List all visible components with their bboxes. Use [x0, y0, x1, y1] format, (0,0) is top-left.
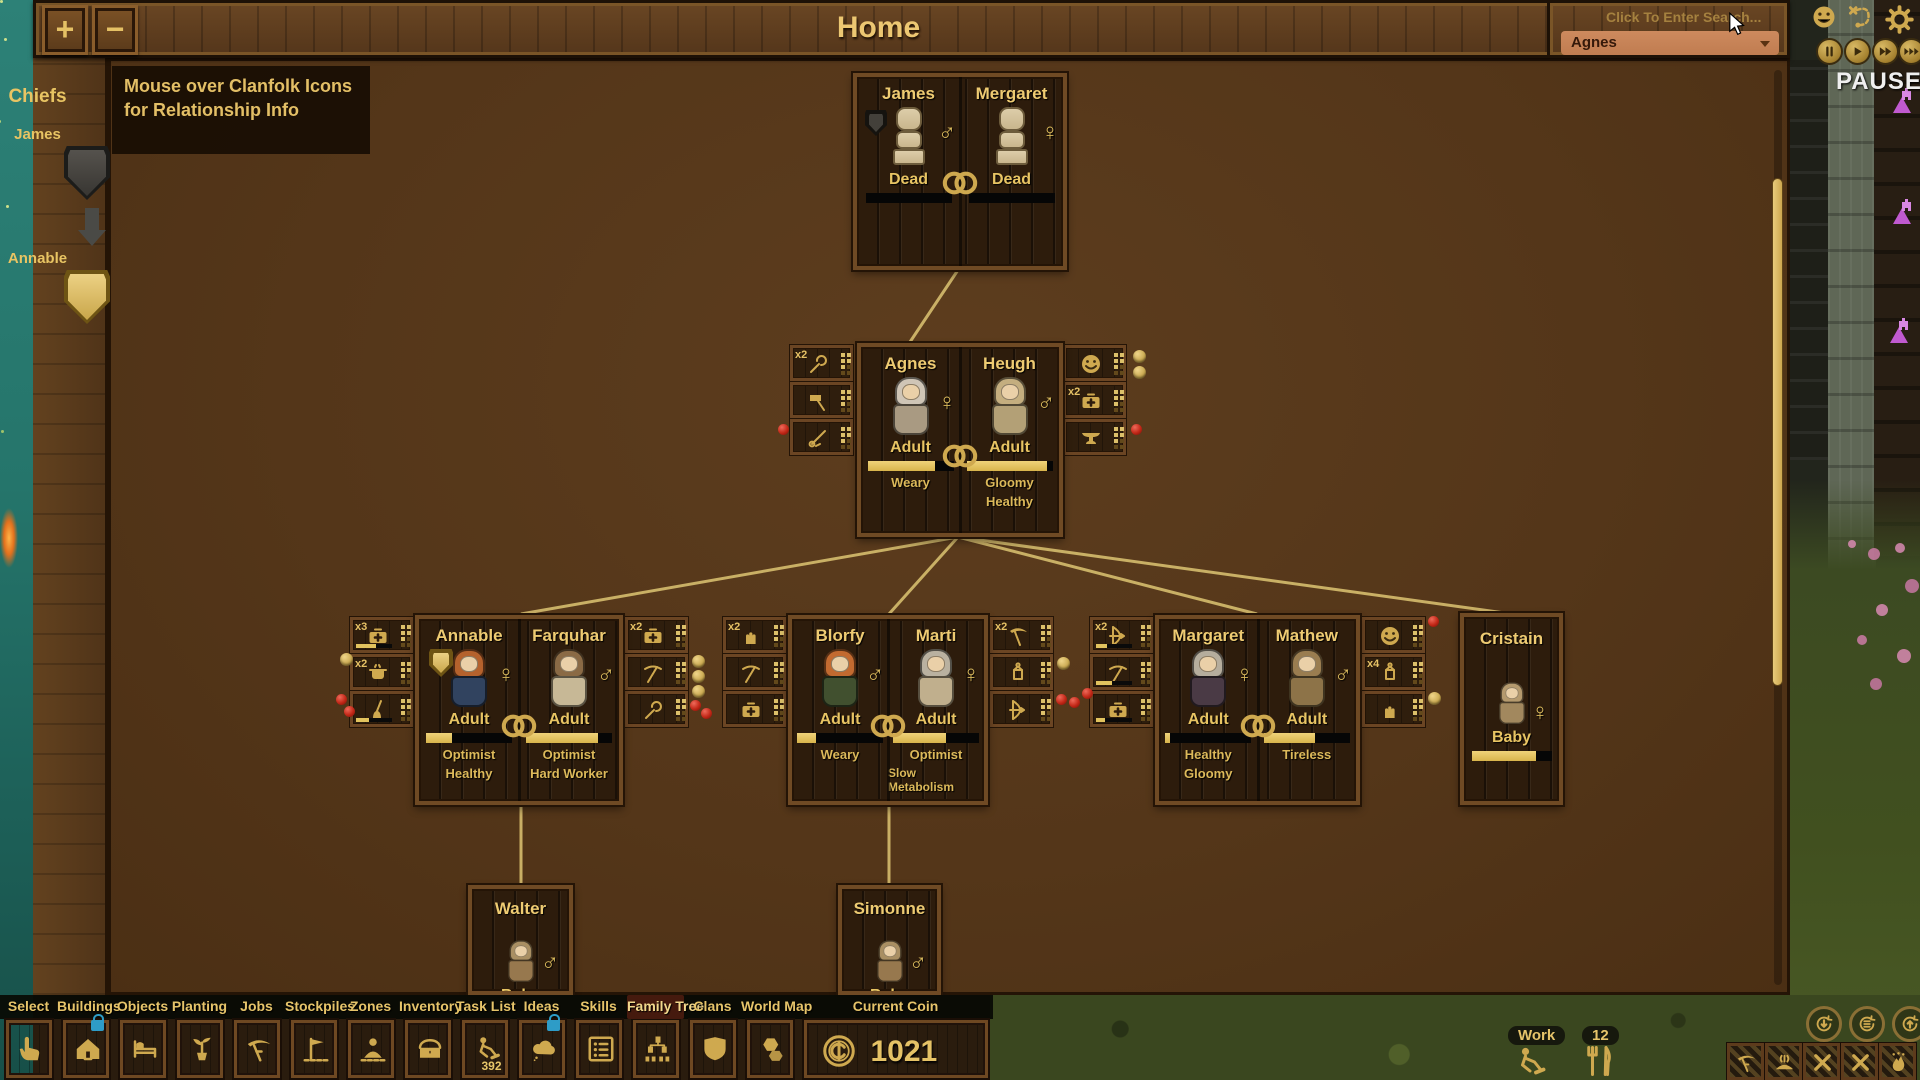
grave-avatar [892, 107, 926, 169]
age-stage: Baby [1492, 729, 1531, 747]
mound-plant-icon [1773, 1051, 1796, 1074]
wrench-icon [641, 698, 665, 722]
tab-jobs[interactable]: Jobs [228, 995, 285, 1080]
page-title: Home [0, 11, 1757, 45]
chevron-down-icon [1760, 41, 1770, 47]
tab-label: Current Coin [798, 995, 993, 1019]
hammer-icon [806, 389, 830, 413]
skill-box[interactable] [790, 419, 853, 455]
lock-icon [91, 1020, 104, 1031]
smiley-icon [1378, 624, 1402, 648]
task-count-badge: 392 [481, 1059, 501, 1073]
scythe-icon [244, 1034, 274, 1064]
gender-male-icon: ♂ [866, 661, 884, 689]
needle-icon [806, 426, 830, 450]
succession-arrow-icon [85, 208, 99, 230]
life-status: Dead [889, 171, 928, 189]
age-stage: Adult [890, 439, 931, 457]
tree-node-annable-farquhar[interactable]: Annable Adult Optimist Healthy ♀ Farquha… [415, 615, 623, 805]
mini-smiley-icon[interactable] [692, 670, 705, 683]
house-icon [73, 1034, 103, 1064]
member-name: Heugh [983, 354, 1036, 374]
member-name: Mergaret [976, 84, 1048, 104]
relation-skill-icons: x2 [990, 617, 1053, 727]
gender-female-icon: ♀ [962, 661, 980, 689]
skill-box[interactable]: x2 [1063, 382, 1126, 418]
mini-smiley-icon[interactable] [1428, 692, 1441, 705]
age-stage: Adult [449, 711, 490, 729]
skill-box[interactable] [1063, 419, 1126, 455]
member-name: Walter [495, 899, 546, 919]
chiefs-title: Chiefs [0, 86, 75, 108]
member-blorfy[interactable]: Blorfy Adult Weary ♂ [792, 619, 888, 801]
member-name: Agnes [885, 354, 937, 374]
plant-icon [187, 1034, 217, 1064]
medkit-icon [739, 698, 763, 722]
tree-node-james-mergaret[interactable]: James Dead ♂ Mergaret Dead ♀ [853, 73, 1067, 270]
relationship-dot[interactable] [1428, 616, 1439, 627]
gender-female-icon: ♀ [497, 661, 515, 689]
member-mathew[interactable]: Mathew Adult Tireless ♂ [1258, 619, 1357, 801]
chief-name: Annable [0, 250, 75, 267]
tab-label: Objects [114, 995, 171, 1019]
lantern-icon [1006, 661, 1030, 685]
world-fire-glow [0, 508, 18, 568]
member-farquhar[interactable]: Farquhar Adult Optimist Hard Worker ♂ [519, 619, 619, 801]
skill-box[interactable] [350, 691, 413, 727]
trait: Hard Worker [530, 766, 608, 781]
skill-box[interactable] [1063, 345, 1126, 381]
trait: Gloomy [985, 475, 1033, 490]
lantern-icon [1378, 661, 1402, 685]
member-name: James [882, 84, 935, 104]
member-name: Simonne [854, 899, 926, 919]
tab-label: World Map [741, 995, 798, 1019]
gender-male-icon: ♂ [1334, 661, 1352, 689]
hint-tooltip: Mouse over Clanfolk Icons for Relationsh… [112, 66, 370, 154]
trait: Optimist [543, 747, 596, 762]
baby-avatar [505, 940, 537, 983]
fire-icon [1887, 1051, 1910, 1074]
history-list-button[interactable] [1849, 1006, 1885, 1042]
fast-forward-button[interactable] [1872, 38, 1899, 65]
member-annable[interactable]: Annable Adult Optimist Healthy ♀ [419, 619, 519, 801]
food-cutlery-icon[interactable] [1582, 1042, 1618, 1080]
relationship-dot[interactable] [778, 424, 789, 435]
relationship-dot[interactable] [1082, 688, 1093, 699]
relation-skill-icons: x2 [790, 345, 853, 455]
member-name: Margaret [1172, 626, 1244, 646]
former-chief-shield-icon [865, 110, 887, 136]
burn-zone-button[interactable] [1879, 1043, 1916, 1080]
relation-skill-icons: x2 [1063, 345, 1126, 455]
age-stage: Adult [989, 439, 1030, 457]
tab-label: Zones [342, 995, 399, 1019]
bow-icon [1006, 698, 1030, 722]
relationship-dot[interactable] [690, 700, 701, 711]
skill-box[interactable]: x2 [1090, 617, 1153, 653]
select-hand-icon [16, 1034, 46, 1064]
skill-box[interactable] [990, 654, 1053, 690]
scrollbar-thumb[interactable] [1772, 178, 1783, 686]
baby-avatar [1496, 682, 1528, 725]
marriage-rings-icon [938, 169, 982, 197]
thought-cloud-icon [529, 1034, 559, 1064]
tree-node-blorfy-marti[interactable]: Blorfy Adult Weary ♂ Marti Adult Optimis… [788, 615, 988, 805]
tab-planting[interactable]: Planting [171, 995, 228, 1080]
cancel-zone-button-2[interactable] [1841, 1043, 1878, 1080]
medkit-icon [641, 624, 665, 648]
cooking-pot-icon [366, 661, 390, 685]
settings-gear-icon[interactable] [1884, 4, 1915, 35]
tab-stockpiles[interactable]: Stockpiles [285, 995, 342, 1080]
marriage-rings-icon [938, 442, 982, 470]
member-name: Cristain [1480, 629, 1543, 649]
medkit-icon [1079, 389, 1103, 413]
skill-box[interactable] [723, 654, 786, 690]
grave-avatar [995, 107, 1029, 169]
chief-shield-james[interactable] [64, 146, 110, 200]
glove-icon [739, 624, 763, 648]
pause-button[interactable] [1816, 38, 1843, 65]
chief-shield-annable[interactable] [64, 270, 110, 324]
avatar [889, 377, 933, 437]
blossom-trees [1848, 540, 1856, 548]
relationship-dot[interactable] [336, 694, 347, 705]
route-planner-icon[interactable] [1846, 2, 1876, 32]
plant-zone-button[interactable] [1765, 1043, 1802, 1080]
tab-world-map[interactable]: World Map [741, 995, 798, 1080]
mini-smiley-icon[interactable] [1133, 350, 1146, 363]
avatar [1285, 649, 1329, 709]
mood-overview-icon[interactable] [1810, 3, 1838, 31]
trait: Slow Metabolism [888, 766, 984, 794]
tab-label: Select [0, 995, 57, 1019]
relationship-dot[interactable] [1069, 697, 1080, 708]
relationship-dot[interactable] [701, 708, 712, 719]
skill-box[interactable] [625, 654, 688, 690]
cancel-zone-button[interactable] [1803, 1043, 1840, 1080]
skill-box[interactable]: x3 [350, 617, 413, 653]
avatar [547, 649, 591, 709]
gender-female-icon: ♀ [1236, 661, 1254, 689]
gender-male-icon: ♂ [1037, 389, 1055, 417]
member-name: Farquhar [532, 626, 606, 646]
relation-skill-icons: x2 [625, 617, 688, 727]
map-marker-icon [1893, 97, 1911, 113]
tab-buildings[interactable]: Buildings [57, 995, 114, 1080]
tree-node-margaret-mathew[interactable]: Margaret Adult Healthy Gloomy ♀ Mathew A… [1155, 615, 1360, 805]
member-agnes[interactable]: Agnes Adult Weary ♀ [861, 347, 960, 533]
skills-list-icon [586, 1034, 616, 1064]
lock-icon [547, 1020, 560, 1031]
avatar [447, 649, 491, 709]
baby-avatar [874, 940, 906, 983]
tab-label: Planting [171, 995, 228, 1019]
pickaxe-icon [739, 661, 763, 685]
work-indicator-label: Work [1508, 1026, 1565, 1045]
mini-smiley-icon[interactable] [1057, 657, 1070, 670]
member-simonne[interactable]: Simonne Baby ♂ [842, 889, 937, 995]
bottom-toolbar: Select Buildings Objects Planting Jobs S… [0, 995, 993, 1080]
trait: Optimist [910, 747, 963, 762]
mouse-cursor [1727, 12, 1747, 36]
skill-box[interactable]: x2 [790, 345, 853, 381]
fastest-forward-button[interactable] [1898, 38, 1920, 65]
gender-female-icon: ♀ [938, 389, 956, 417]
history-up-button[interactable] [1892, 1006, 1920, 1042]
chest-icon [415, 1034, 445, 1064]
trait: Healthy [446, 766, 493, 781]
chief-badge-icon [429, 649, 453, 677]
tab-label: Task List [456, 995, 513, 1019]
relationship-dot[interactable] [1131, 424, 1142, 435]
age-stage: Adult [549, 711, 590, 729]
mini-smiley-icon[interactable] [692, 685, 705, 698]
member-name: Mathew [1276, 626, 1338, 646]
tab-family-tree[interactable]: Family Tree [627, 995, 684, 1080]
stockpile-flag-icon [301, 1034, 331, 1064]
world-grass [1790, 480, 1920, 1080]
marriage-rings-icon [1236, 712, 1280, 740]
tab-select[interactable]: Select [0, 995, 57, 1080]
member-walter[interactable]: Walter Baby ♂ [472, 889, 569, 995]
member-name: Blorfy [815, 626, 864, 646]
skill-box[interactable]: x2 [990, 617, 1053, 653]
relation-skill-icons: x2 [1090, 617, 1153, 727]
tab-label: Skills [570, 995, 627, 1019]
tree-node-agnes-heugh[interactable]: Agnes Adult Weary ♀ Heugh Adult Gloomy H… [857, 343, 1063, 537]
relationship-dot[interactable] [344, 706, 355, 717]
relationship-dot[interactable] [1056, 694, 1067, 705]
tab-skills[interactable]: Skills [570, 995, 627, 1080]
lifespan-bar [1472, 751, 1552, 761]
tab-zones[interactable]: Zones [342, 995, 399, 1080]
member-marti[interactable]: Marti Adult Optimist Slow Metabolism ♀ [888, 619, 984, 801]
gender-male-icon: ♂ [938, 119, 956, 147]
person-select-value: Agnes [1571, 34, 1617, 51]
gender-female-icon: ♀ [1531, 699, 1549, 727]
tab-ideas[interactable]: Ideas [513, 995, 570, 1080]
trait: Weary [821, 747, 860, 762]
harvest-scythe-icon [1735, 1051, 1758, 1074]
tab-current-coin[interactable]: Current Coin1021 [798, 995, 993, 1080]
trait: Tireless [1282, 747, 1331, 762]
avatar [1186, 649, 1230, 709]
chief-name: James [0, 126, 75, 143]
paused-indicator: PAUSED [1836, 68, 1920, 96]
life-status: Dead [992, 171, 1031, 189]
age-stage: Adult [1286, 711, 1327, 729]
work-digger-icon[interactable] [1512, 1044, 1548, 1080]
skill-box[interactable] [790, 382, 853, 418]
tab-clans[interactable]: Clans [684, 995, 741, 1080]
gender-female-icon: ♀ [1041, 119, 1059, 147]
mini-smiley-icon[interactable] [1133, 366, 1146, 379]
world-map-hex-icon [757, 1034, 787, 1064]
map-marker-icon [1890, 327, 1908, 343]
skill-box[interactable]: x2 [625, 617, 688, 653]
marriage-rings-icon [866, 712, 910, 740]
history-down-button[interactable] [1806, 1006, 1842, 1042]
marriage-rings-icon [497, 712, 541, 740]
smiley-icon [1079, 352, 1103, 376]
trait: Optimist [443, 747, 496, 762]
tree-node-cristain[interactable]: Cristain Baby ♀ [1460, 613, 1563, 805]
zone-person-icon [358, 1034, 388, 1064]
mini-smiley-icon[interactable] [340, 653, 353, 666]
avatar [818, 649, 862, 709]
skill-box[interactable]: x4 [1362, 654, 1425, 690]
skill-box[interactable] [625, 691, 688, 727]
age-stage: Adult [1188, 711, 1229, 729]
tab-label: Buildings [57, 995, 114, 1019]
tab-label: Stockpiles [285, 995, 342, 1019]
relation-skill-icons: x2 [723, 617, 786, 727]
zoom-out-button[interactable]: − [92, 5, 138, 55]
member-margaret[interactable]: Margaret Adult Healthy Gloomy ♀ [1159, 619, 1258, 801]
map-marker-icon [1893, 208, 1911, 224]
member-name: Marti [916, 626, 957, 646]
bed-icon [130, 1034, 160, 1064]
trait: Healthy [1185, 747, 1232, 762]
tab-inventory[interactable]: Inventory [399, 995, 456, 1080]
zoom-in-button[interactable]: + [42, 5, 88, 55]
tree-node-simonne[interactable]: Simonne Baby ♂ [838, 885, 941, 995]
member-heugh[interactable]: Heugh Adult Gloomy Healthy ♂ [960, 347, 1059, 533]
world-wall [1790, 60, 1830, 460]
skill-box[interactable] [990, 691, 1053, 727]
anvil-icon [1079, 426, 1103, 450]
avatar [988, 377, 1032, 437]
skill-box[interactable] [1362, 617, 1425, 653]
clan-shield-icon [700, 1034, 730, 1064]
x-mark-icon [1811, 1051, 1834, 1074]
tree-node-walter[interactable]: Walter Baby ♂ [468, 885, 573, 995]
member-name: Annable [435, 626, 502, 646]
tab-label: Inventory [399, 995, 456, 1019]
tab-label: Jobs [228, 995, 285, 1019]
tab-label: Clans [684, 995, 741, 1019]
age-stage: Baby [870, 987, 909, 995]
gender-male-icon: ♂ [597, 661, 615, 689]
relation-skill-icons: x3 x2 [350, 617, 413, 727]
age-stage: Baby [501, 987, 540, 995]
coin-icon [821, 1033, 857, 1069]
play-button[interactable] [1844, 38, 1871, 65]
tab-label: Family Tree [627, 995, 684, 1019]
tab-objects[interactable]: Objects [114, 995, 171, 1080]
mini-smiley-icon[interactable] [692, 655, 705, 668]
trait: Gloomy [1184, 766, 1232, 781]
member-cristain[interactable]: Cristain Baby ♀ [1464, 617, 1559, 761]
trait: Healthy [986, 494, 1033, 509]
relation-skill-icons: x4 [1362, 617, 1425, 727]
x-mark-icon [1849, 1051, 1872, 1074]
coin-amount: 1021 [871, 1035, 938, 1069]
pickaxe-icon [641, 661, 665, 685]
gender-male-icon: ♂ [541, 949, 559, 977]
age-stage: Adult [820, 711, 861, 729]
skill-box[interactable]: x2 [723, 617, 786, 653]
skill-box[interactable] [1090, 691, 1153, 727]
skill-box[interactable] [1362, 691, 1425, 727]
trait: Weary [891, 475, 930, 490]
wrench-icon [806, 352, 830, 376]
tab-task-list[interactable]: Task List392 [456, 995, 513, 1080]
glove-icon [1378, 698, 1402, 722]
skill-box[interactable] [1090, 654, 1153, 690]
skill-box[interactable] [723, 691, 786, 727]
skill-box[interactable]: x2 [350, 654, 413, 690]
gender-male-icon: ♂ [909, 949, 927, 977]
tab-label: Ideas [513, 995, 570, 1019]
harvest-zone-button[interactable] [1727, 1043, 1764, 1080]
avatar [914, 649, 958, 709]
age-stage: Adult [916, 711, 957, 729]
scythe-icon [1006, 624, 1030, 648]
family-tree-icon [643, 1034, 673, 1064]
